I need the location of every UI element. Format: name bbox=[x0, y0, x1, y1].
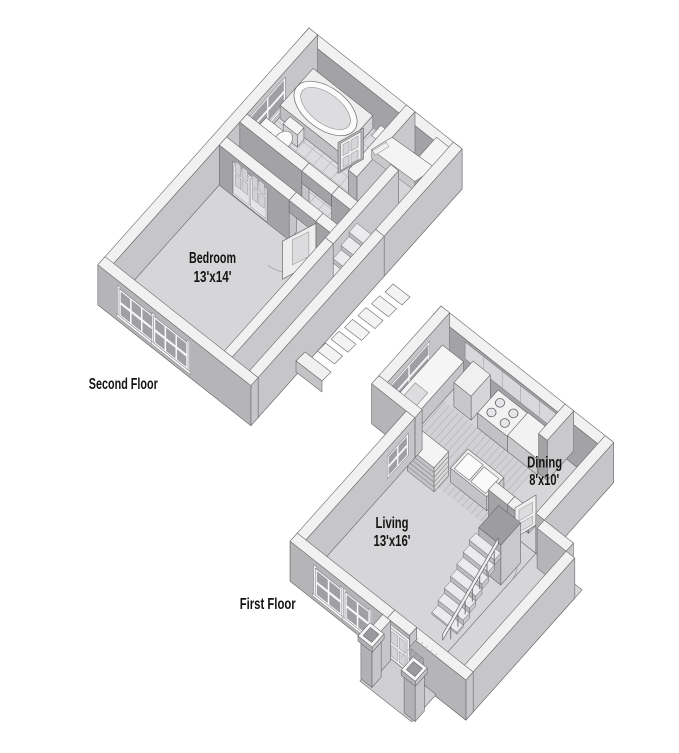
svg-text:Dining: Dining bbox=[527, 455, 562, 472]
svg-text:8'x10': 8'x10' bbox=[529, 472, 559, 489]
svg-text:First Floor: First Floor bbox=[240, 596, 296, 613]
svg-text:Second Floor: Second Floor bbox=[89, 376, 158, 393]
svg-text:13'x14': 13'x14' bbox=[194, 269, 232, 286]
svg-text:13'x16': 13'x16' bbox=[374, 533, 411, 550]
svg-text:Bedroom: Bedroom bbox=[189, 250, 236, 267]
svg-text:Living: Living bbox=[376, 515, 409, 532]
